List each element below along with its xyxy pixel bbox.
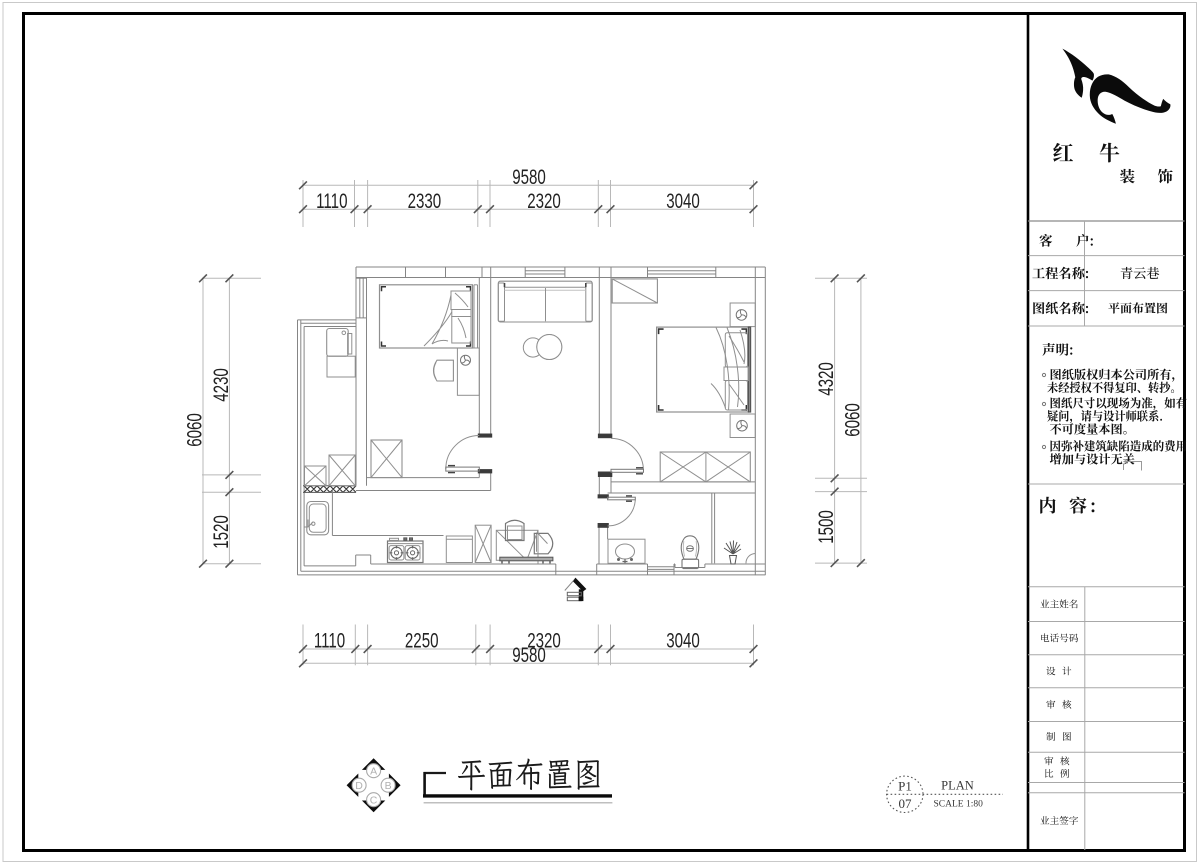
svg-text:3040: 3040 bbox=[666, 628, 700, 652]
svg-text:07: 07 bbox=[899, 796, 913, 811]
svg-text:P1: P1 bbox=[898, 779, 912, 794]
svg-text:1520: 1520 bbox=[208, 515, 232, 549]
svg-text:2320: 2320 bbox=[527, 188, 561, 212]
svg-text:2330: 2330 bbox=[408, 188, 442, 212]
svg-text:2250: 2250 bbox=[405, 628, 439, 652]
svg-text:C: C bbox=[370, 794, 378, 806]
svg-text:6060: 6060 bbox=[182, 413, 206, 447]
svg-text:B: B bbox=[385, 780, 392, 792]
svg-text:4230: 4230 bbox=[208, 368, 232, 402]
svg-text:3040: 3040 bbox=[666, 188, 700, 212]
svg-text:1110: 1110 bbox=[314, 628, 345, 652]
svg-text:D: D bbox=[355, 780, 363, 792]
svg-text:A: A bbox=[370, 765, 377, 777]
svg-text:1110: 1110 bbox=[316, 188, 347, 212]
svg-text:PLAN: PLAN bbox=[941, 779, 974, 793]
svg-text:9580: 9580 bbox=[512, 642, 546, 666]
svg-text:9580: 9580 bbox=[512, 164, 546, 188]
svg-text:4320: 4320 bbox=[814, 362, 838, 396]
svg-text:SCALE 1:80: SCALE 1:80 bbox=[934, 800, 984, 810]
svg-text:6060: 6060 bbox=[840, 403, 864, 437]
svg-text:1500: 1500 bbox=[814, 510, 838, 544]
